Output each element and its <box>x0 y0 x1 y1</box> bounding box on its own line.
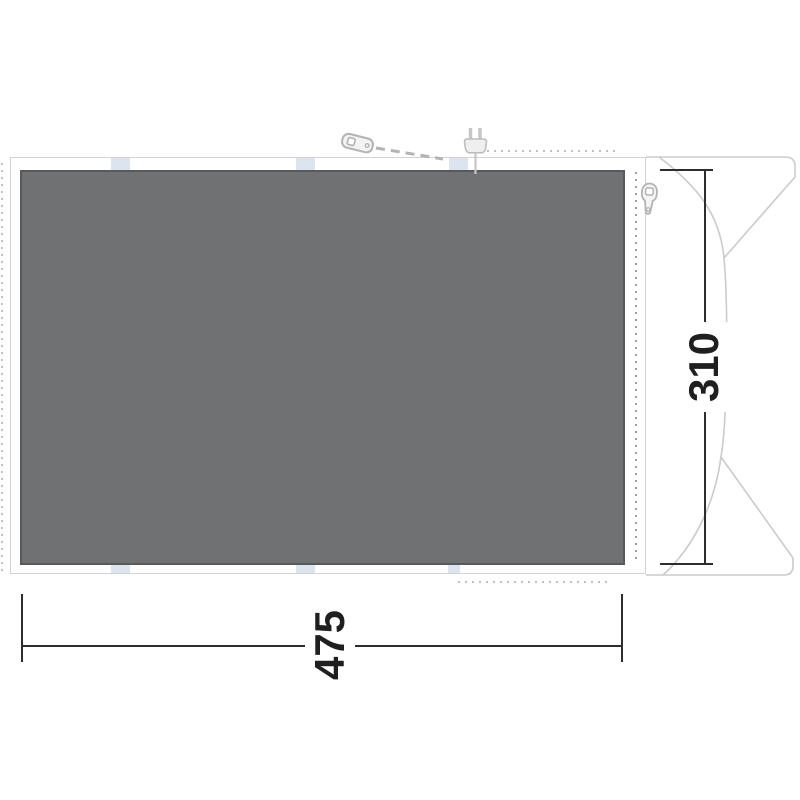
tent-outline-top <box>646 157 795 258</box>
attachment-tab <box>296 158 315 170</box>
groundsheet <box>20 170 625 565</box>
guy-peg-icon <box>341 133 374 154</box>
dimension-depth-tick-top <box>660 169 713 171</box>
dimension-width-label: 475 <box>305 600 355 690</box>
dimension-width-tick-left <box>21 594 23 662</box>
dimension-depth-tick-bottom <box>660 563 713 565</box>
zipper-teeth <box>635 172 637 562</box>
stitch-line-left <box>1 163 3 571</box>
dimension-width-tick-right <box>621 594 623 662</box>
dimension-depth-label: 310 <box>679 322 729 412</box>
attachment-tab <box>111 158 130 170</box>
footprint-diagram: 475 310 <box>0 0 800 800</box>
attachment-tab <box>296 565 315 573</box>
attachment-tab <box>449 158 468 170</box>
stitch-line-bottom <box>458 581 610 583</box>
attachment-tab <box>448 565 460 573</box>
stitch-line-top <box>487 150 619 152</box>
tent-outline-bottom <box>646 457 793 575</box>
zip-flap <box>631 157 646 574</box>
attachment-tab <box>111 565 130 573</box>
